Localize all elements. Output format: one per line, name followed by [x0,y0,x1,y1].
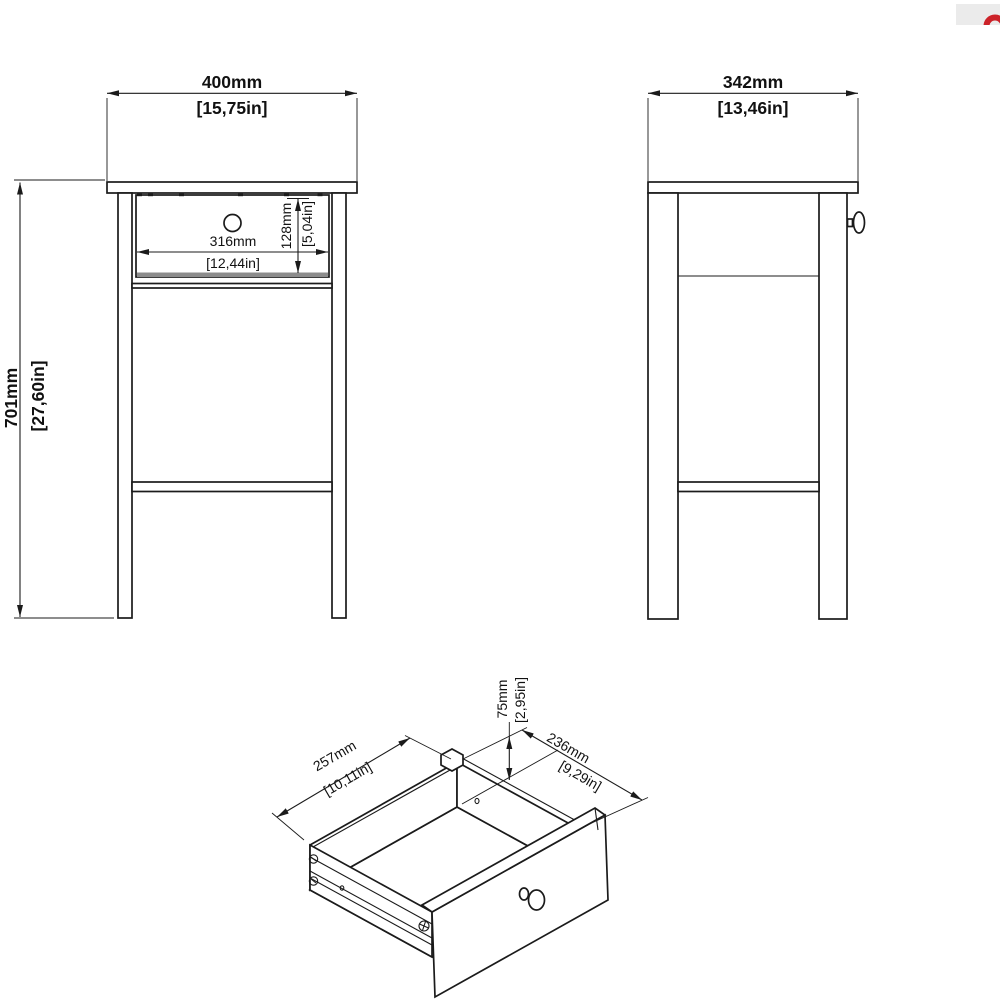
side-depth-dimension: 342mm [13,46in] [648,72,858,181]
drawer-height-in-label: [5,04in] [299,201,315,247]
front-width-mm-label: 400mm [202,72,262,92]
drawer-shadow-band [137,273,328,278]
brand-logo-partial [956,4,1000,35]
side-view: 342mm [13,46in] [648,72,865,619]
front-stretcher-rail [132,482,332,492]
logo-background [956,4,1000,25]
side-back-leg [648,193,678,619]
front-left-leg [118,193,132,618]
side-knob-profile [848,212,865,233]
nightstand-dimension-diagram: 400mm [15,75in] 701mm [27,60in] 316mm [1… [0,0,1000,1000]
drawer-isometric-view: 257mm [10,11in] 236mm [9,29in] 75mm [2,9… [272,677,648,997]
back-corner-post [441,749,463,771]
front-height-mm-label: 701mm [1,368,21,428]
front-height-dimension: 701mm [27,60in] [1,180,114,618]
side-depth-mm-label: 342mm [723,72,783,92]
front-tabletop [107,182,357,193]
drawer-width-mm-label: 316mm [210,233,257,249]
front-view: 400mm [15,75in] 701mm [27,60in] 316mm [1… [1,72,357,618]
iso-height-in-label: [2,95in] [512,677,528,723]
drawer-height-mm-label: 128mm [278,203,294,250]
logo-red-mark [987,18,1000,35]
front-width-dimension: 400mm [15,75in] [107,72,357,181]
iso-drawer-knob [529,890,545,910]
front-height-in-label: [27,60in] [28,361,48,432]
front-top-rail [132,284,332,289]
side-tabletop [648,182,858,193]
drawer-width-in-label: [12,44in] [206,255,260,271]
technical-drawing-page: 400mm [15,75in] 701mm [27,60in] 316mm [1… [0,0,1000,1000]
front-width-in-label: [15,75in] [197,98,268,118]
iso-height-mm-label: 75mm [494,680,510,719]
iso-knob-base [520,888,529,900]
side-front-leg [819,193,847,619]
side-depth-in-label: [13,46in] [718,98,789,118]
front-right-leg [332,193,346,618]
side-stretcher-rail [678,482,819,492]
